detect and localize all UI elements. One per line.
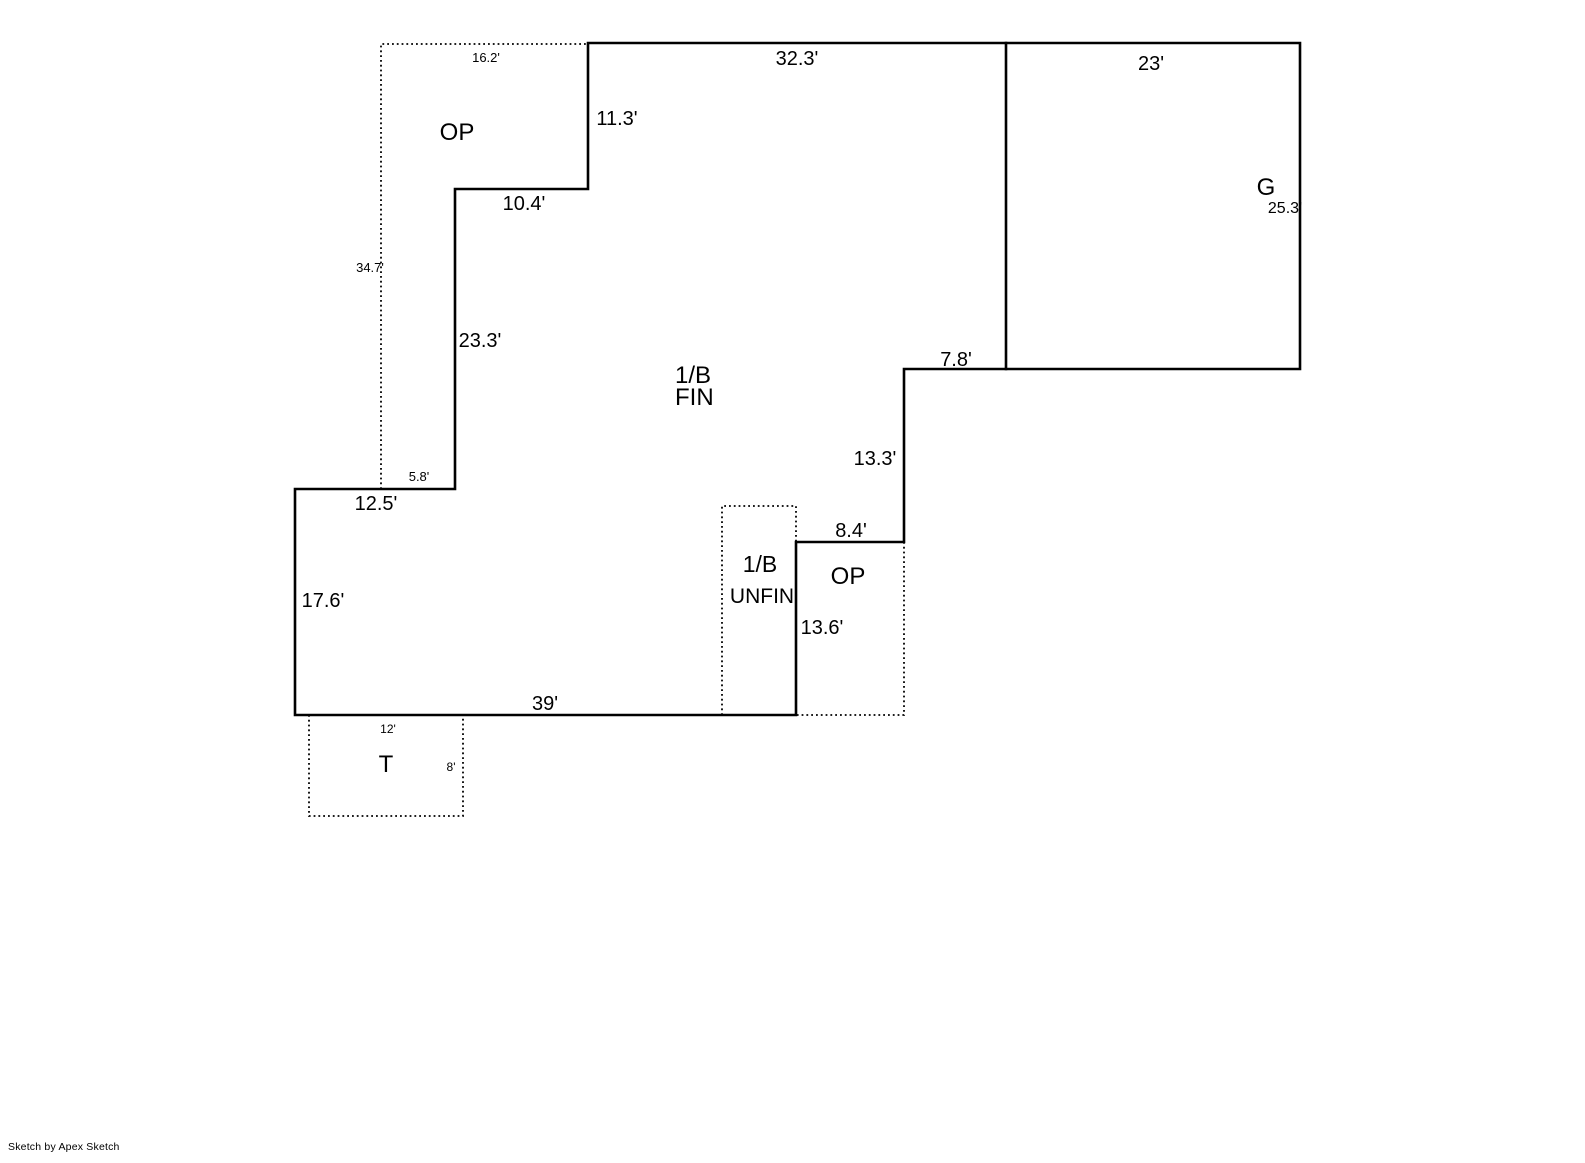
dim-terrace-top-label: 12' — [380, 722, 396, 736]
sketch-page: 16.2' 32.3' 23' 11.3' 10.4' 25.3' 34.7' … — [0, 0, 1585, 1163]
area-basement-unfinished-line1-label: 1/B — [743, 551, 778, 577]
area-terrace-label: T — [379, 751, 394, 778]
area-open-porch-lower-label: OP — [831, 563, 866, 590]
dim-main-upper-right-label: 11.3' — [596, 108, 637, 130]
basement-unfinished-dotted-boundary — [722, 506, 796, 715]
dim-main-step-bottom-label: 12.5' — [355, 493, 398, 515]
garage-outline — [1006, 43, 1300, 369]
dim-op-upper-bottom-label: 5.8' — [409, 469, 430, 484]
area-open-porch-upper-label: OP — [440, 119, 475, 146]
dim-main-top-label: 32.3' — [776, 48, 819, 70]
dim-op-upper-top-label: 16.2' — [472, 50, 500, 65]
dim-terrace-right-label: 8' — [447, 760, 456, 774]
area-basement-finished-line2-label: FIN — [675, 384, 714, 411]
dim-op-upper-left-label: 34.7' — [356, 260, 384, 275]
dim-garage-right-label: 25.3' — [1268, 200, 1302, 217]
dim-main-bottom-label: 39' — [532, 693, 558, 715]
dim-op-lower-right-label: 13.6' — [801, 617, 844, 639]
dim-rear-step-right-label: 13.3' — [854, 448, 897, 470]
open-porch-upper-dotted-boundary — [381, 44, 588, 489]
dim-main-mid-left-label: 23.3' — [459, 330, 502, 352]
dim-rear-step-top-label: 7.8' — [940, 349, 972, 371]
dim-op-upper-step-label: 10.4' — [503, 193, 546, 215]
area-basement-unfinished-line2-label: UNFIN — [730, 585, 794, 608]
sketch-credit: Sketch by Apex Sketch — [8, 1141, 120, 1153]
dim-garage-top-label: 23' — [1138, 53, 1164, 75]
main-structure-outline — [295, 43, 1006, 715]
floorplan-sketch: 16.2' 32.3' 23' 11.3' 10.4' 25.3' 34.7' … — [0, 0, 1585, 1163]
area-garage-label: G — [1257, 174, 1276, 201]
dim-op-lower-top-label: 8.4' — [835, 520, 867, 542]
dim-main-lower-left-label: 17.6' — [302, 590, 345, 612]
